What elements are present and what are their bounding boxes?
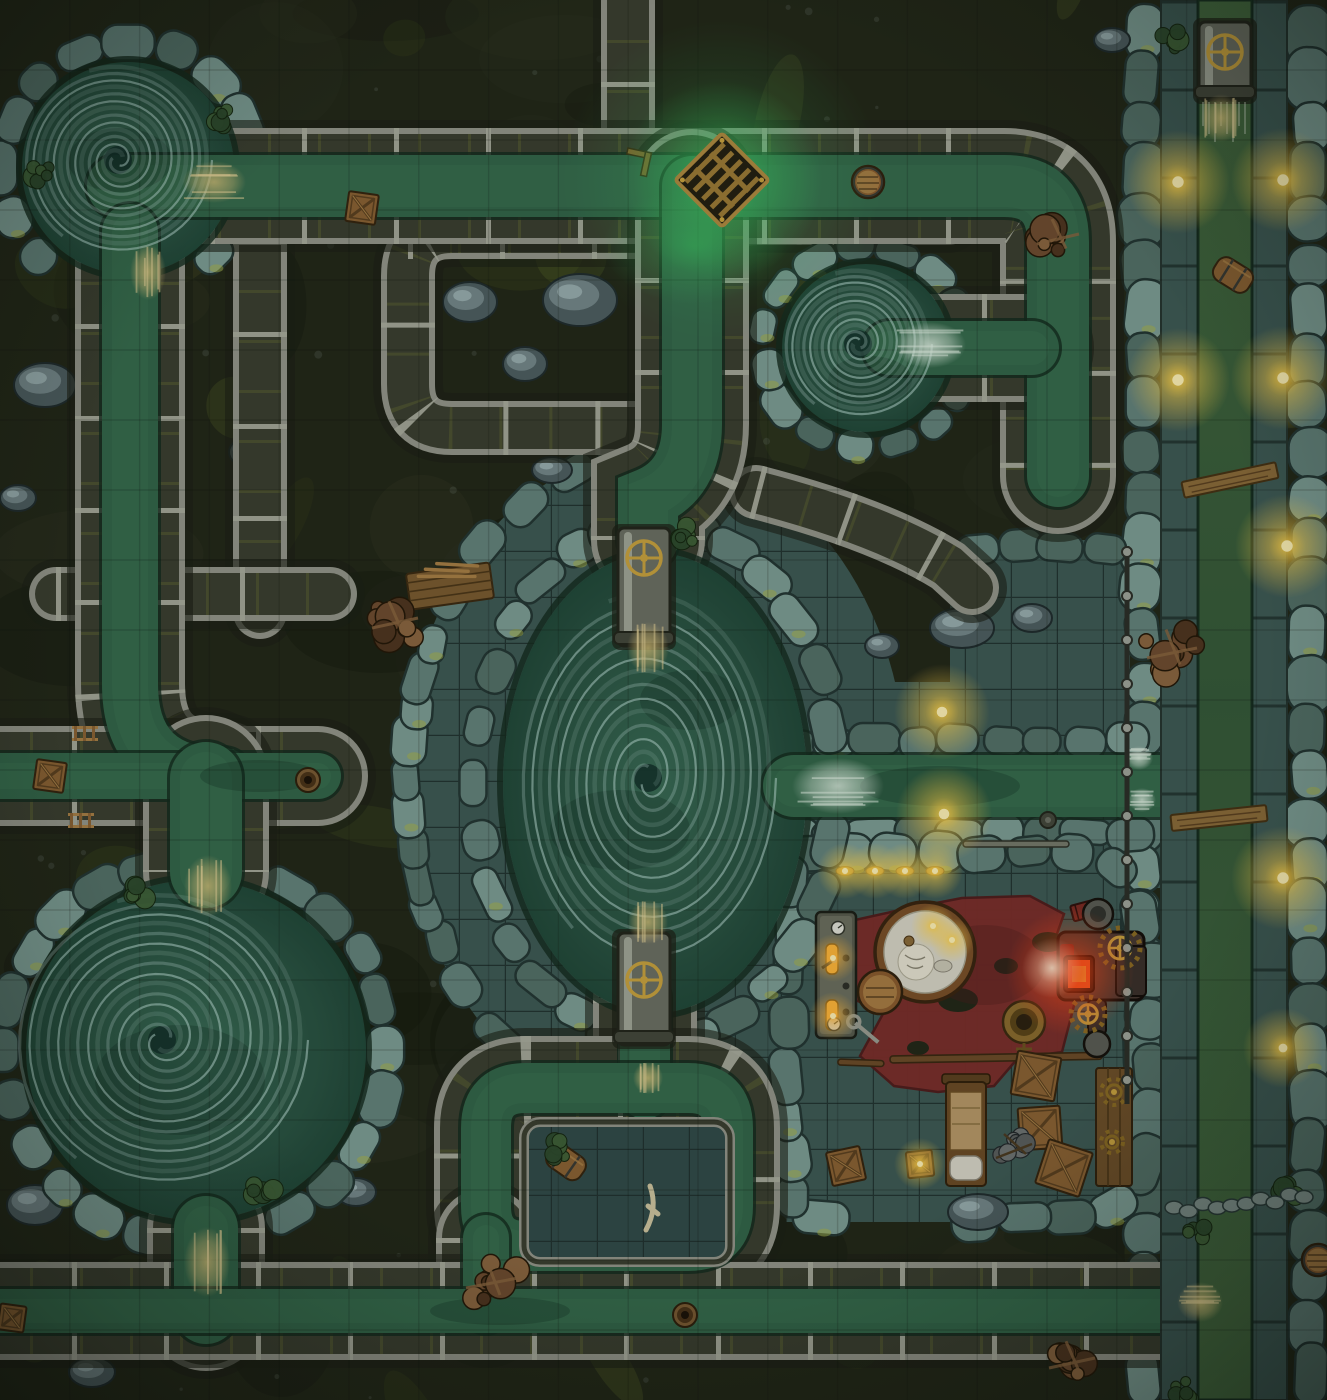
sewer-battlemap: Dark sewer battle map with green sludge … — [0, 0, 1327, 1400]
vignette — [0, 0, 1327, 1400]
